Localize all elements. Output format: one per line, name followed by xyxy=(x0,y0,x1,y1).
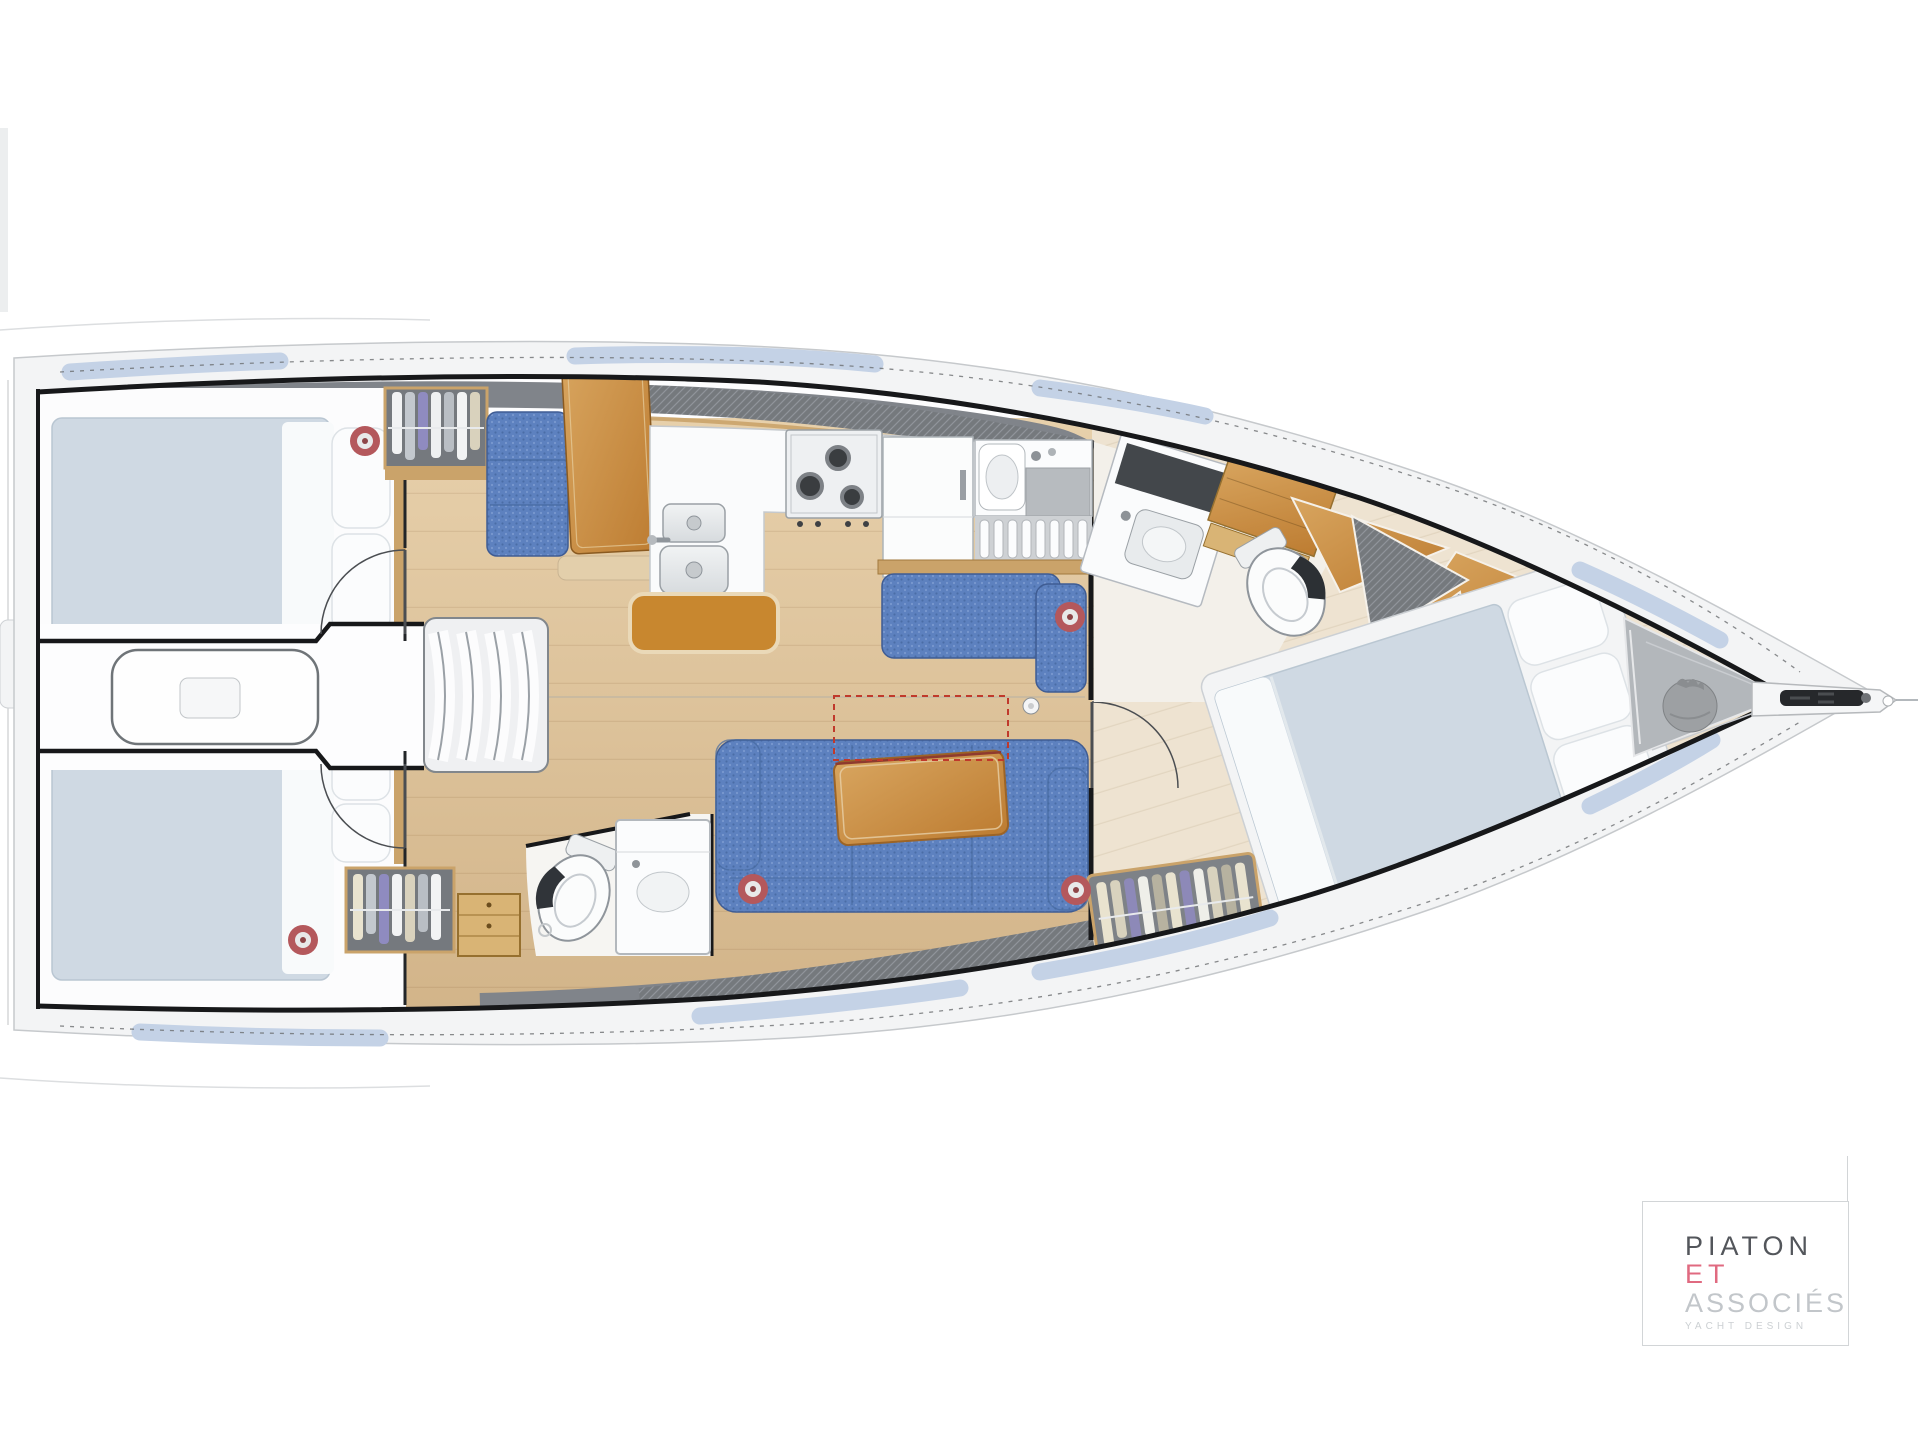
refrigerator xyxy=(883,437,973,577)
companionway-steps xyxy=(424,618,548,772)
logo-tagline: YACHT DESIGN xyxy=(1685,1321,1848,1332)
locker-grating xyxy=(975,516,1092,562)
wet-locker-unit xyxy=(975,440,1092,562)
porthole-icon xyxy=(738,874,768,904)
wardrobe-shelf xyxy=(385,466,487,480)
head-vanity xyxy=(616,820,710,954)
margin-strip xyxy=(0,128,8,312)
logo-name-2: ET xyxy=(1685,1260,1848,1288)
forestay-fitting xyxy=(1883,696,1893,706)
yacht-floor-plan: PIATON ET ASSOCIÉS YACHT DESIGN xyxy=(0,0,1920,1440)
wardrobe-aft-port xyxy=(385,388,487,480)
porthole-icon xyxy=(1061,875,1091,905)
companionway xyxy=(28,618,548,772)
settee-trim xyxy=(878,560,1090,574)
fridge-handle xyxy=(960,470,966,500)
engine-hatch xyxy=(180,678,240,718)
logo-name-3: ASSOCIÉS xyxy=(1685,1289,1848,1317)
hanging-clothes-icon xyxy=(392,392,480,460)
tap-icon xyxy=(632,860,640,868)
designer-logo: PIATON ET ASSOCIÉS YACHT DESIGN xyxy=(1642,1201,1849,1346)
nav-seat xyxy=(487,412,568,556)
porthole-icon xyxy=(288,925,318,955)
logo-name-1: PIATON xyxy=(1685,1232,1848,1260)
settee-upper xyxy=(882,574,1060,658)
interior xyxy=(28,334,1802,1018)
saloon-table xyxy=(833,750,1008,846)
porthole-icon xyxy=(1055,602,1085,632)
tap-icon xyxy=(1031,451,1041,461)
pillow xyxy=(332,534,390,634)
vanity-basin-icon xyxy=(637,872,689,912)
settee-upper-arm xyxy=(1036,584,1086,692)
porthole-icon xyxy=(350,426,380,456)
drawer-unit xyxy=(458,894,520,956)
galley-bench xyxy=(630,594,778,652)
stove-icon xyxy=(786,430,882,527)
nav-platform xyxy=(558,556,662,580)
logo-tick-line xyxy=(1847,1156,1848,1201)
floor-plan-drawing xyxy=(0,0,1920,1440)
aft-cabin-port xyxy=(40,388,406,642)
pillow xyxy=(332,804,390,862)
